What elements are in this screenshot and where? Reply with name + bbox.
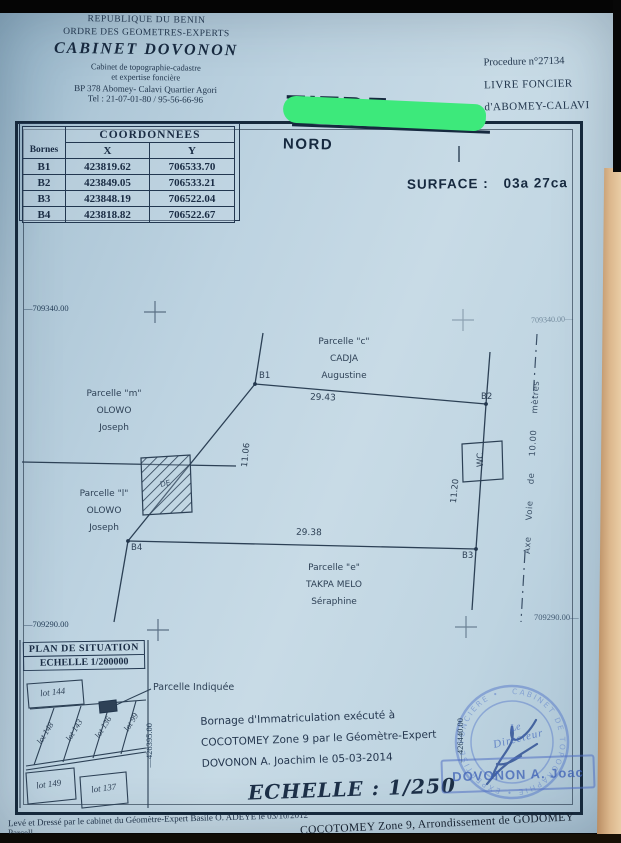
owner-firstname: Joseph [58, 520, 150, 537]
grid-cross-ne [452, 309, 474, 331]
photo-right-black-edge [613, 0, 621, 172]
borne-point-b4 [126, 539, 130, 543]
borne-y: 706522.67 [150, 207, 235, 223]
col-header-y: Y [150, 143, 235, 159]
situation-scale: ECHELLE 1/200000 [23, 655, 145, 671]
borne-point-b2 [484, 402, 488, 406]
south-boundary-line [128, 541, 476, 549]
north-label: NORD [283, 136, 333, 154]
parcel-north-label: Parcelle "c" CADJA Augustine [300, 334, 388, 385]
grid-cross-se [455, 616, 477, 638]
borne-x: 423819.62 [65, 159, 149, 175]
owner-firstname: Séraphine [288, 594, 380, 611]
borne-label-b1: B1 [259, 371, 270, 381]
borne-x: 423848.19 [65, 191, 149, 207]
parcel-west-lower-label: Parcelle "l" OLOWO Joseph [58, 486, 150, 537]
wc-label: WC [476, 453, 486, 467]
surface-label: SURFACE : [407, 176, 489, 192]
borne-id: B1 [23, 159, 66, 175]
photo-bottom-black-band [0, 834, 621, 843]
owner-firstname: Joseph [68, 420, 160, 437]
grid-label-v-left: —426395.00 [144, 723, 154, 768]
borne-y: 706533.21 [150, 175, 235, 191]
parcel-name: Parcelle "l" [58, 486, 150, 503]
indicated-parcel-label: Parcelle Indiquée [153, 682, 234, 693]
table-row: B4 423818.82 706522.67 [23, 207, 235, 223]
grid-cross-sw [147, 619, 169, 641]
borne-y: 706522.04 [150, 191, 235, 207]
dimension-top: 29.43 [310, 393, 336, 404]
surface-line: SURFACE : 03a 27ca [407, 175, 568, 192]
coordinates-title: COORDONNEES [65, 127, 234, 143]
name-stamp-text: DOVONON A. Joac [452, 764, 584, 784]
dimension-bottom: 29.38 [296, 528, 322, 539]
borne-x: 423849.05 [65, 175, 149, 191]
parcel-west-upper-label: Parcelle "m" OLOWO Joseph [68, 386, 160, 437]
borne-label-b2: B2 [481, 392, 492, 402]
borne-label-b3: B3 [462, 551, 473, 561]
lots-row-top-line [30, 700, 146, 709]
owner-name: OLOWO [68, 403, 160, 420]
borne-id: B4 [23, 207, 66, 223]
grid-label-se: 709290.00— [534, 612, 579, 622]
road-axis-line-lower [521, 552, 525, 622]
borne-label-b4: B4 [131, 543, 142, 553]
parcel-south-label: Parcelle "e" TAKPA MELO Séraphine [288, 560, 380, 611]
borne-id: B3 [23, 191, 66, 207]
grid-label-ne: 709340.00— [531, 314, 573, 324]
table-row: B1 423819.62 706533.70 [23, 159, 235, 175]
surface-value: 03a 27ca [503, 175, 567, 191]
indicated-parcel-shape [99, 700, 117, 713]
grid-label-sw: —709290.00 [24, 619, 69, 629]
owner-name: CADJA [300, 351, 388, 368]
photo-top-black-band [0, 0, 621, 13]
col-header-x: X [65, 143, 149, 159]
indicated-parcel-leader [116, 689, 151, 705]
owner-name: OLOWO [58, 503, 150, 520]
borne-x: 423818.82 [65, 207, 149, 223]
parcel-name: Parcelle "c" [300, 334, 388, 351]
parcel-name: Parcelle "m" [68, 386, 160, 403]
situation-header: PLAN DE SITUATION ECHELLE 1/200000 [23, 640, 145, 671]
lots-row-bottom-line [26, 748, 146, 766]
col-header-bornes: Bornes [23, 143, 66, 159]
name-stamp-rect: DOVONON A. Joac [440, 754, 595, 793]
coordinates-table: COORDONNEES Bornes X Y B1 423819.62 7065… [22, 126, 235, 223]
north-boundary-line [255, 384, 486, 404]
grid-label-nw: —709340.00 [24, 303, 69, 313]
parcel-name: Parcelle "e" [288, 560, 380, 577]
table-row: B3 423848.19 706522.04 [23, 191, 235, 207]
borne-point-b3 [474, 547, 478, 551]
parcel-m-l-divider [22, 462, 236, 466]
borne-id: B2 [23, 175, 66, 191]
table-row: B2 423849.05 706533.21 [23, 175, 235, 191]
coordinates-corner-cell [23, 127, 66, 143]
borne-point-b1 [253, 382, 257, 386]
owner-firstname: Augustine [300, 368, 388, 385]
scanned-cadastral-document: REPUBLIQUE DU BENIN ORDRE DES GEOMETRES-… [0, 0, 621, 843]
borne-y: 706533.70 [150, 159, 235, 175]
grid-cross-nw [144, 301, 166, 323]
owner-name: TAKPA MELO [288, 577, 380, 594]
road-line [26, 752, 146, 770]
